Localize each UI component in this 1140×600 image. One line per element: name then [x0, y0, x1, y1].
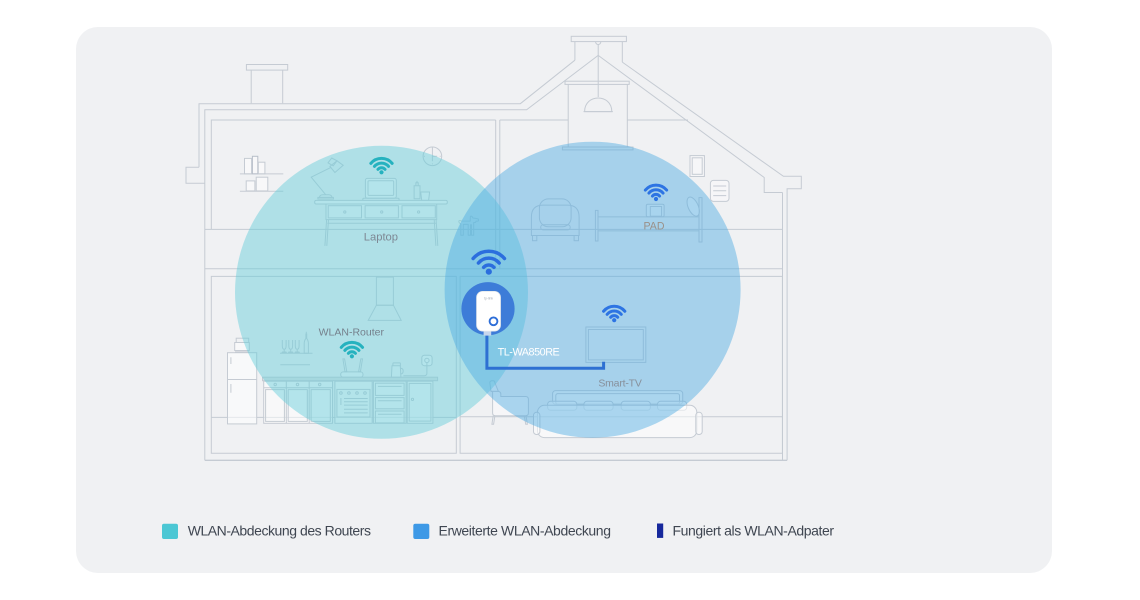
- svg-text:Erweiterte WLAN-Abdeckung: Erweiterte WLAN-Abdeckung: [439, 523, 611, 539]
- svg-text:TL-WA850RE: TL-WA850RE: [498, 346, 560, 358]
- svg-text:WLAN-Router: WLAN-Router: [319, 327, 385, 339]
- svg-text:Smart-TV: Smart-TV: [598, 378, 642, 390]
- svg-text:PAD: PAD: [644, 221, 665, 233]
- svg-text:WLAN-Abdeckung des Routers: WLAN-Abdeckung des Routers: [188, 523, 371, 539]
- svg-text:Fungiert als WLAN-Adpater: Fungiert als WLAN-Adpater: [673, 523, 835, 539]
- svg-text:Laptop: Laptop: [364, 231, 398, 243]
- svg-text:tp-link: tp-link: [484, 297, 493, 301]
